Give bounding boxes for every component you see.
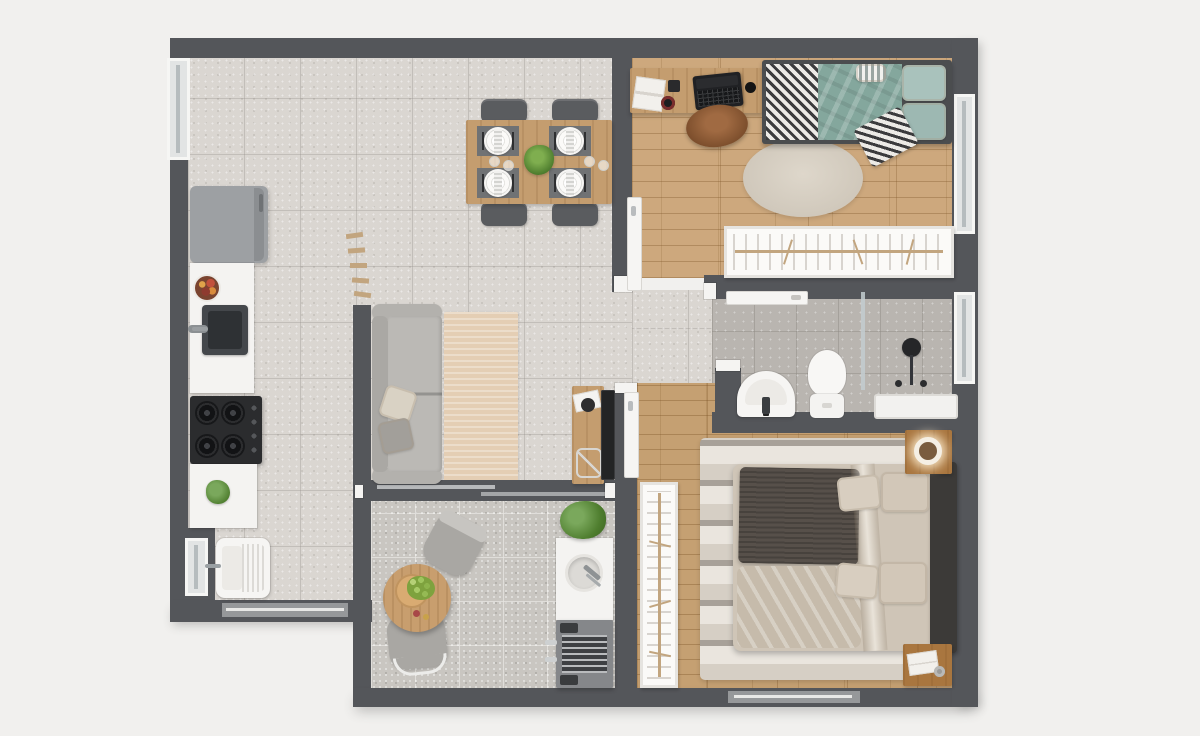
toilet: [808, 350, 846, 418]
napkin-4: [566, 171, 574, 195]
kitchen-slider-glass: [226, 608, 344, 611]
stove-burner-3: [195, 434, 219, 458]
ring-lamp: [914, 437, 942, 465]
round-rug-bedroom1: [743, 139, 863, 217]
bed2-pillow-1: [836, 474, 881, 512]
bed1-striped-pillow: [856, 64, 886, 82]
kitchen-sink: [202, 305, 248, 355]
floor-hallway: [632, 290, 715, 385]
wall-shelf-3: [350, 263, 367, 268]
napkin-2: [566, 129, 574, 153]
balcony-slider-cap-right: [605, 483, 615, 498]
balcony-counter: [556, 538, 613, 620]
glass-2: [503, 160, 514, 171]
sofa-pillow-gray: [377, 417, 415, 455]
napkin-3: [494, 171, 502, 195]
wall-bottom: [353, 688, 978, 707]
nightstand-top: [905, 430, 952, 474]
laundry-washboard: [242, 544, 266, 592]
jamb-bedroom1-bottom-wall-end: [704, 283, 716, 299]
napkin-1: [494, 129, 502, 153]
bed2-headboard: [930, 462, 957, 653]
shower-knob-left: [895, 380, 902, 387]
bedroom1-right-window-glass: [962, 101, 966, 227]
table-snack-1: [413, 610, 420, 617]
nightstand-vase: [934, 666, 945, 677]
wall-sofa-stub: [353, 305, 371, 485]
stove-burner-2: [221, 401, 245, 425]
desk-mouse: [745, 82, 756, 93]
desk-notebook: [668, 80, 680, 92]
bathroom-right-window-glass: [962, 299, 966, 377]
bedroom1-wardrobe: [724, 226, 954, 278]
kitchen-faucet: [192, 327, 208, 331]
counter-plant: [206, 480, 230, 504]
bedroom1-right-window: [954, 94, 975, 234]
washbasin-faucet: [762, 397, 770, 414]
refrigerator: [190, 186, 268, 263]
grill-handle-2: [545, 657, 557, 662]
laundry-tub-basin: [222, 546, 242, 590]
glass-4: [598, 160, 609, 171]
nightstand-bottom: [903, 644, 952, 686]
bedroom1-door: [627, 197, 642, 291]
laundry-tub: [216, 538, 270, 598]
wardrobe1-rail: [735, 250, 943, 253]
shower-tray: [874, 394, 958, 419]
master-door: [624, 392, 639, 478]
bed2-pillow-4: [879, 562, 927, 604]
bedroom1-door-handle: [631, 206, 636, 216]
kitchen-slider-door: [222, 603, 348, 617]
fruit-bowl: [195, 276, 219, 300]
balcony-table: [383, 564, 451, 632]
dining-chair-3: [481, 202, 527, 226]
balcony-slider-track-a: [377, 485, 495, 489]
wall-tv: [601, 390, 615, 480]
bathroom-door: [726, 291, 808, 305]
refrigerator-handle: [259, 194, 263, 212]
balcony-plant: [560, 501, 606, 539]
master-wardrobe: [640, 482, 678, 688]
laundry-window-glass: [194, 545, 198, 589]
grill-knob-top: [560, 623, 578, 633]
plate-2: [556, 127, 584, 155]
floor-plan-canvas: [0, 0, 1200, 736]
desk-mug: [661, 96, 675, 110]
master-window-slider-glass: [734, 695, 852, 698]
plate-1: [484, 127, 512, 155]
laundry-faucet: [205, 564, 221, 568]
wall-top: [170, 38, 976, 58]
barbecue-grill: [556, 620, 613, 688]
bed2-pillow-2: [881, 472, 929, 512]
console-basket: [576, 448, 602, 478]
desk-books: [632, 76, 666, 112]
console-bowl: [581, 398, 595, 412]
table-snack-2: [423, 614, 429, 620]
stove-burner-1: [195, 401, 219, 425]
shower-stem: [910, 355, 913, 385]
tv-console: [572, 386, 604, 484]
bed1-zigzag-blanket: [766, 64, 820, 140]
kitchen-left-window-glass: [176, 65, 180, 153]
stove-burner-4: [221, 434, 245, 458]
master-window-slider: [728, 691, 860, 703]
grill-handle-1: [545, 640, 557, 645]
grapes: [407, 576, 435, 600]
wardrobe2-rail: [658, 493, 661, 677]
plate-3: [484, 169, 512, 197]
toilet-tank: [810, 394, 844, 418]
shower-glass-partition: [861, 292, 865, 390]
jamb-bathroom-wall-top: [716, 360, 740, 371]
grill-grate: [562, 635, 607, 673]
glass-1: [489, 156, 500, 167]
plate-4: [556, 169, 584, 197]
double-bed: [733, 462, 957, 653]
balcony-slider-cap-left: [355, 483, 363, 498]
grill-knob-bottom: [560, 675, 578, 685]
bathroom-right-window: [954, 292, 975, 384]
toilet-bowl: [808, 350, 846, 396]
shower-knob-right: [920, 380, 927, 387]
kitchen-left-window: [167, 58, 190, 160]
balcony-slider-track-b: [481, 492, 607, 496]
kitchen-sink-basin: [208, 311, 242, 349]
living-rug: [444, 312, 518, 482]
master-door-handle: [628, 401, 633, 411]
bed1-pillow-top: [902, 65, 946, 101]
floor-master-doorway: [637, 383, 717, 431]
dining-chair-4: [552, 202, 598, 226]
bed2-pillow-3: [835, 562, 880, 600]
toilet-flush-button: [822, 403, 832, 408]
sofa: [370, 304, 444, 484]
glass-3: [584, 156, 595, 167]
gas-stove: [190, 396, 262, 464]
bathroom-door-handle: [791, 295, 801, 300]
wall-balcony-left: [353, 490, 371, 706]
